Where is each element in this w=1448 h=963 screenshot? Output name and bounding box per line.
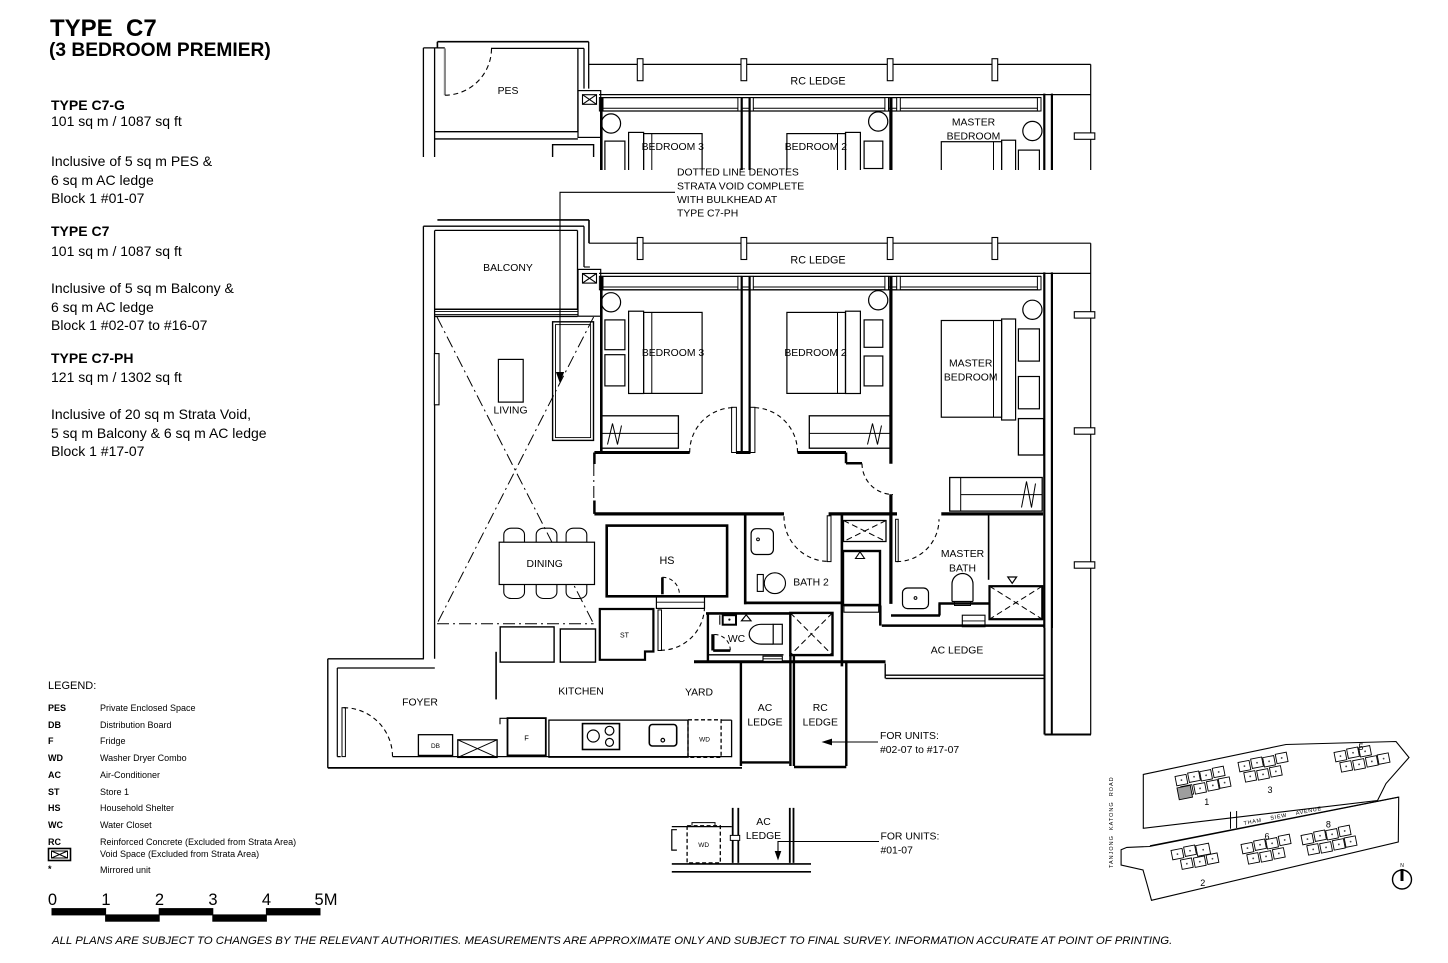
svg-text:BEDROOM 3: BEDROOM 3 xyxy=(642,142,705,153)
svg-text:6: 6 xyxy=(1264,832,1269,842)
svg-text:0: 0 xyxy=(48,891,57,909)
svg-text:KITCHEN: KITCHEN xyxy=(558,687,604,698)
svg-text:MASTER: MASTER xyxy=(949,359,993,370)
svg-text:F: F xyxy=(524,734,529,743)
svg-text:BEDROOM 3: BEDROOM 3 xyxy=(642,348,705,359)
svg-text:2: 2 xyxy=(1200,878,1205,888)
svg-text:BEDROOM: BEDROOM xyxy=(947,132,1001,143)
svg-text:WD: WD xyxy=(698,842,709,849)
svg-text:AC: AC xyxy=(756,817,771,828)
svg-text:N: N xyxy=(1400,863,1404,869)
svg-text:4: 4 xyxy=(262,891,271,909)
svg-text:TANJONG KATONG ROAD: TANJONG KATONG ROAD xyxy=(1109,776,1115,868)
svg-text:BEDROOM 2: BEDROOM 2 xyxy=(784,348,847,359)
svg-text:RC: RC xyxy=(813,703,829,714)
svg-text:TYPE C7-PH: TYPE C7-PH xyxy=(677,208,738,219)
svg-text:BATH 2: BATH 2 xyxy=(793,578,829,589)
svg-text:3: 3 xyxy=(208,891,217,909)
svg-text:MASTER: MASTER xyxy=(941,549,985,560)
svg-text:DOTTED LINE DENOTES: DOTTED LINE DENOTES xyxy=(677,168,799,179)
svg-text:YARD: YARD xyxy=(685,688,713,699)
svg-text:BALCONY: BALCONY xyxy=(483,263,533,274)
svg-text:LEDGE: LEDGE xyxy=(747,718,782,729)
svg-text:STRATA VOID COMPLETE: STRATA VOID COMPLETE xyxy=(677,181,804,192)
svg-text:FOR UNITS:: FOR UNITS: xyxy=(880,731,939,742)
svg-text:LEDGE: LEDGE xyxy=(803,718,838,729)
svg-text:FOR UNITS:: FOR UNITS: xyxy=(881,832,940,843)
svg-text:2: 2 xyxy=(155,891,164,909)
svg-text:AC LEDGE: AC LEDGE xyxy=(931,646,984,657)
svg-text:HS: HS xyxy=(660,555,675,567)
svg-text:FOYER: FOYER xyxy=(402,698,438,709)
svg-text:LEDGE: LEDGE xyxy=(746,831,781,842)
svg-text:BEDROOM 2: BEDROOM 2 xyxy=(785,142,848,153)
svg-text:5: 5 xyxy=(1358,742,1363,752)
svg-text:DB: DB xyxy=(431,743,440,750)
svg-text:PES: PES xyxy=(498,86,519,97)
svg-text:THAM SIEW AVENUE: THAM SIEW AVENUE xyxy=(1243,806,1322,827)
svg-text:3: 3 xyxy=(1267,785,1272,795)
svg-text:DINING: DINING xyxy=(527,559,563,570)
svg-text:WD: WD xyxy=(699,737,710,744)
svg-text:BATH: BATH xyxy=(949,564,976,575)
svg-text:1: 1 xyxy=(1204,797,1209,807)
svg-text:#02-07 to #17-07: #02-07 to #17-07 xyxy=(880,745,959,756)
svg-text:5M: 5M xyxy=(315,891,338,909)
svg-text:#01-07: #01-07 xyxy=(881,845,914,856)
svg-text:LIVING: LIVING xyxy=(493,406,527,417)
svg-text:BEDROOM: BEDROOM xyxy=(944,373,998,384)
svg-text:WITH BULKHEAD AT: WITH BULKHEAD AT xyxy=(677,195,778,206)
svg-text:MASTER: MASTER xyxy=(952,118,996,129)
svg-text:1: 1 xyxy=(101,891,110,909)
svg-text:WC: WC xyxy=(728,634,746,645)
svg-text:8: 8 xyxy=(1326,820,1331,830)
svg-text:ST: ST xyxy=(620,633,630,640)
svg-text:AC: AC xyxy=(758,703,773,714)
